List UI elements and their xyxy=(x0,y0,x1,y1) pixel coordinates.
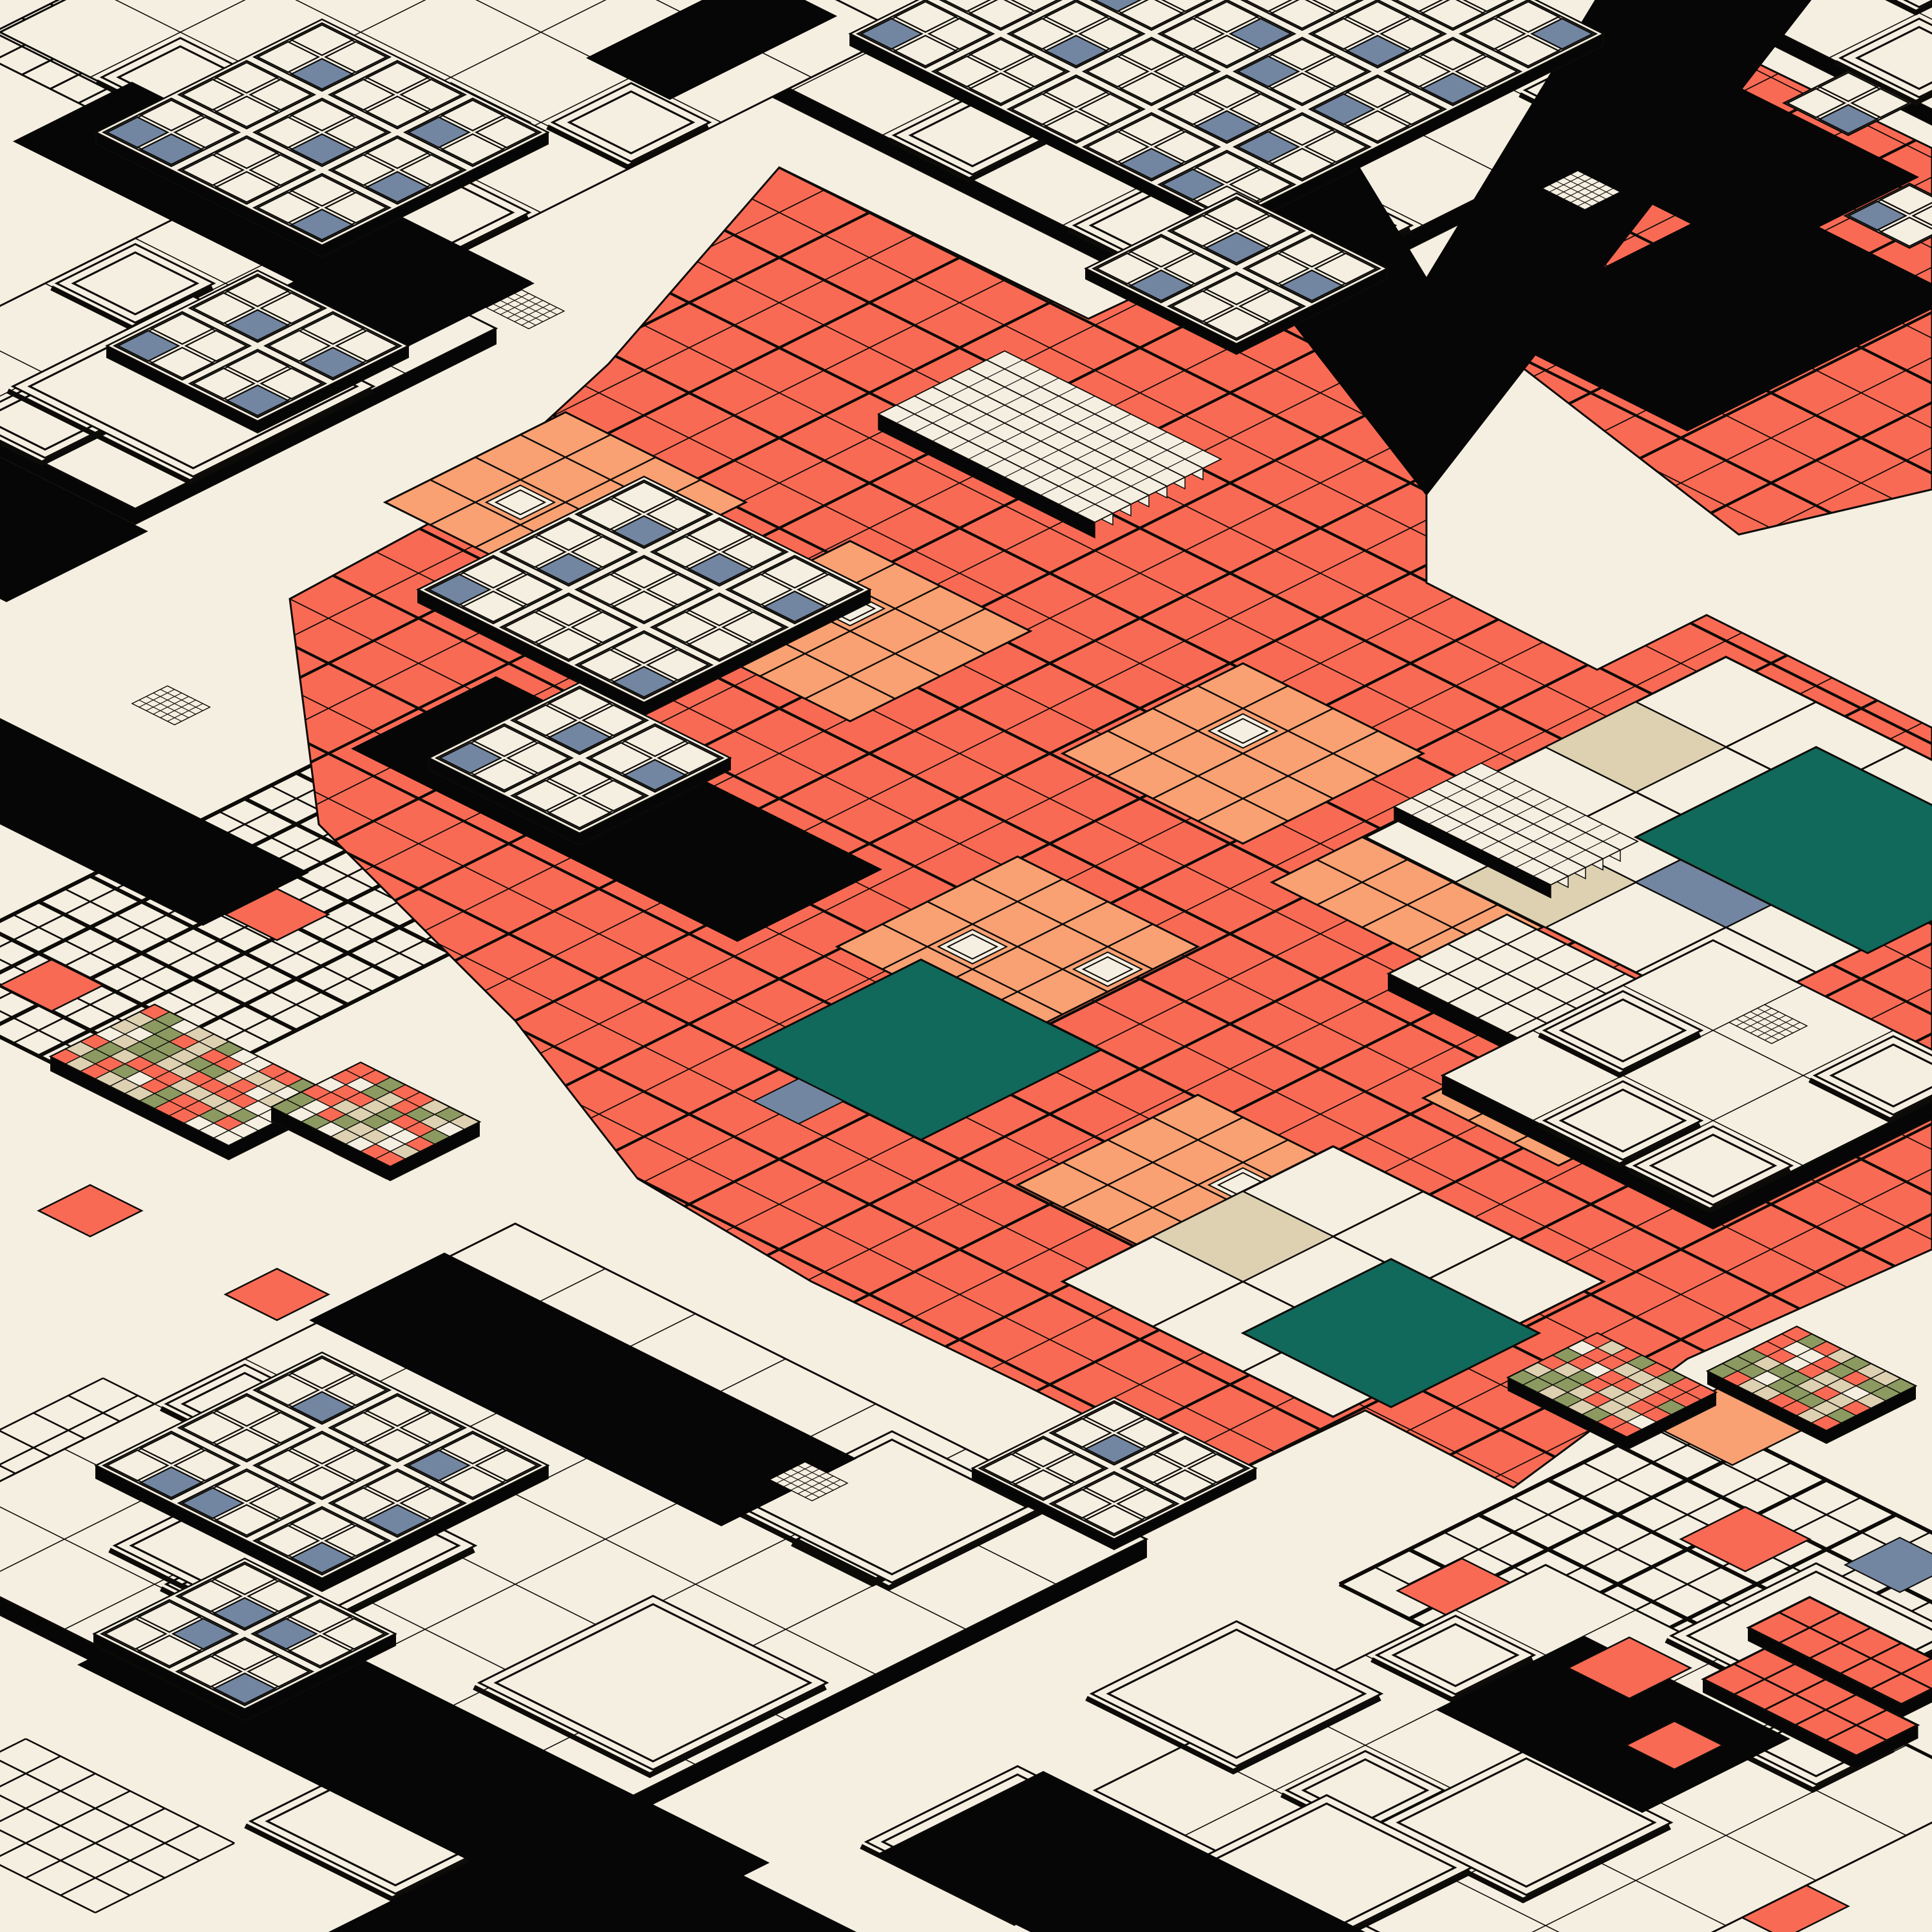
accent-tile xyxy=(1681,1507,1810,1571)
accent-tile xyxy=(39,1185,142,1236)
artwork-canvas xyxy=(0,0,1932,1932)
pixel-grid-patch xyxy=(132,686,210,725)
accent-tile xyxy=(225,1269,328,1320)
grid-field-bottom-corner xyxy=(0,1739,234,1913)
generative-isometric-artwork: Isometric generative composition — coral… xyxy=(0,0,1932,1932)
